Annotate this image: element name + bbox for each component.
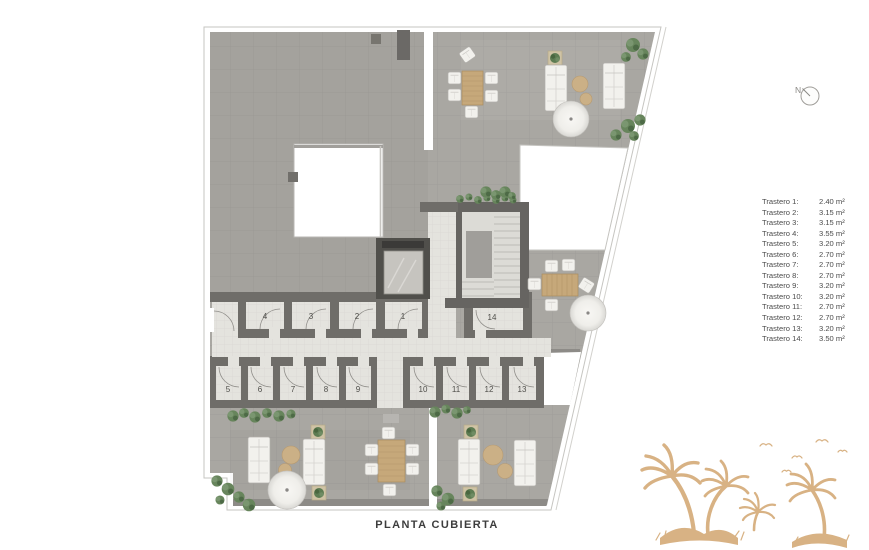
legend-row: Trastero 4:3.55 m²: [762, 229, 845, 240]
legend-area: 3.20 m²: [819, 239, 845, 250]
birds: [760, 440, 847, 472]
legend-area: 3.15 m²: [819, 218, 845, 229]
parasol: [570, 295, 606, 331]
legend-row: Trastero 11:2.70 m²: [762, 302, 845, 313]
room-number: 6: [258, 385, 263, 394]
legend-area: 3.20 m²: [819, 324, 845, 335]
stair-wall-south: [445, 298, 529, 308]
legend-label: Trastero 13:: [762, 324, 819, 335]
legend-area: 2.70 m²: [819, 302, 845, 313]
floor-plan: 4 3 2 1 14 5 6 7: [0, 0, 869, 550]
legend-label: Trastero 7:: [762, 260, 819, 271]
parapet-gap-top: [424, 32, 433, 150]
chair: [448, 72, 461, 84]
chair: [406, 463, 419, 475]
dining-table: [542, 274, 578, 296]
chair: [562, 259, 575, 271]
room-number: 12: [485, 385, 494, 394]
sun-lounger: [458, 439, 480, 485]
legend-area: 3.20 m²: [819, 281, 845, 292]
legend-area: 2.70 m²: [819, 250, 845, 261]
pouf: [282, 446, 300, 464]
legend-label: Trastero 9:: [762, 281, 819, 292]
chair: [545, 260, 558, 272]
void-below-terrace: [544, 352, 581, 405]
room-number: 1: [401, 312, 406, 321]
lobby-floor: [428, 207, 456, 338]
room-number: 3: [309, 312, 314, 321]
rooftop-vent: [288, 172, 298, 182]
chair: [485, 72, 498, 84]
sun-lounger: [248, 437, 270, 483]
legend-row: Trastero 13:3.20 m²: [762, 324, 845, 335]
palm-tree: [642, 445, 700, 533]
planter: [548, 51, 562, 65]
north-indicator: N: [795, 85, 819, 105]
legend-label: Trastero 2:: [762, 208, 819, 219]
legend-label: Trastero 5:: [762, 239, 819, 250]
stair-wall-west: [456, 212, 462, 298]
stair-landing: [466, 231, 492, 278]
room-number: 2: [355, 312, 360, 321]
chair: [448, 89, 461, 101]
planter: [463, 487, 477, 501]
legend-row: Trastero 6:2.70 m²: [762, 250, 845, 261]
legend-area: 3.15 m²: [819, 208, 845, 219]
palm-watermark: [642, 440, 849, 548]
elevator: [376, 238, 430, 299]
legend-area: 2.70 m²: [819, 260, 845, 271]
legend-label: Trastero 1:: [762, 197, 819, 208]
pouf: [498, 464, 513, 479]
legend-area: 2.70 m²: [819, 313, 845, 324]
sun-lounger: [603, 63, 625, 109]
light-well-void: [520, 145, 628, 250]
palm-tree-small: [740, 493, 775, 530]
concrete-highlight: [460, 40, 620, 120]
corridor-floor: [212, 338, 551, 357]
stair-wall-east: [520, 202, 529, 308]
legend-row: Trastero 10:3.20 m²: [762, 292, 845, 303]
elevator-cab: [384, 251, 423, 294]
room-number: 14: [488, 313, 497, 322]
vestibule-floor: [212, 302, 238, 340]
legend-row: Trastero 2:3.15 m²: [762, 208, 845, 219]
chair: [383, 484, 396, 496]
legend-label: Trastero 10:: [762, 292, 819, 303]
legend-label: Trastero 4:: [762, 229, 819, 240]
palm-tree: [702, 461, 748, 534]
parasol: [268, 471, 306, 509]
legend-row: Trastero 12:2.70 m²: [762, 313, 845, 324]
legend-row: Trastero 5:3.20 m²: [762, 239, 845, 250]
floorplan-page: 4 3 2 1 14 5 6 7: [0, 0, 869, 550]
chair: [382, 427, 395, 439]
rooftop-chimney: [397, 30, 410, 60]
palm-ground: [660, 528, 738, 545]
chair: [465, 106, 478, 118]
legend-area: 3.50 m²: [819, 334, 845, 345]
room-number: 11: [452, 385, 461, 394]
planter: [464, 425, 478, 439]
passage-floor: [377, 356, 403, 408]
chair: [545, 299, 558, 311]
chair: [528, 278, 541, 290]
room-number: 5: [226, 385, 231, 394]
legend-area: 2.40 m²: [819, 197, 845, 208]
legend-row: Trastero 3:3.15 m²: [762, 218, 845, 229]
room-number: 13: [518, 385, 527, 394]
legend-label: Trastero 3:: [762, 218, 819, 229]
room-number: 4: [263, 312, 268, 321]
trastero-legend: Trastero 1:2.40 m² Trastero 2:3.15 m² Tr…: [762, 197, 845, 345]
chair: [365, 444, 378, 456]
sun-lounger: [303, 439, 325, 485]
parasol: [553, 101, 589, 137]
legend-row: Trastero 14:3.50 m²: [762, 334, 845, 345]
legend-label: Trastero 8:: [762, 271, 819, 282]
legend-area: 3.55 m²: [819, 229, 845, 240]
palm-tree: [787, 464, 835, 538]
sun-lounger: [514, 440, 536, 486]
legend-row: Trastero 9:3.20 m²: [762, 281, 845, 292]
pouf: [580, 93, 592, 105]
legend-row: Trastero 1:2.40 m²: [762, 197, 845, 208]
elevator-counterweight: [382, 241, 424, 248]
rooftop-vent: [371, 34, 381, 44]
legend-label: Trastero 12:: [762, 313, 819, 324]
chair: [365, 463, 378, 475]
legend-label: Trastero 11:: [762, 302, 819, 313]
plan-title: PLANTA CUBIERTA: [332, 519, 542, 531]
room-number: 7: [291, 385, 296, 394]
north-label: N: [795, 85, 801, 95]
planter: [312, 486, 326, 500]
patio-void: [294, 144, 383, 237]
legend-row: Trastero 8:2.70 m²: [762, 271, 845, 282]
palm-ground: [792, 533, 847, 548]
lobby-wall-north: [420, 202, 458, 212]
legend-label: Trastero 6:: [762, 250, 819, 261]
room-number: 10: [419, 385, 428, 394]
room-number: 9: [356, 385, 361, 394]
pouf: [572, 76, 588, 92]
room-number: 8: [324, 385, 329, 394]
west-door-opening: [205, 308, 214, 332]
pouf: [483, 445, 503, 465]
chair: [406, 444, 419, 456]
legend-label: Trastero 14:: [762, 334, 819, 345]
doormat-step: [383, 414, 399, 423]
legend-row: Trastero 7:2.70 m²: [762, 260, 845, 271]
stair-wall-north: [451, 202, 528, 212]
legend-area: 2.70 m²: [819, 271, 845, 282]
legend-area: 3.20 m²: [819, 292, 845, 303]
chair: [485, 90, 498, 102]
planter: [311, 425, 325, 439]
